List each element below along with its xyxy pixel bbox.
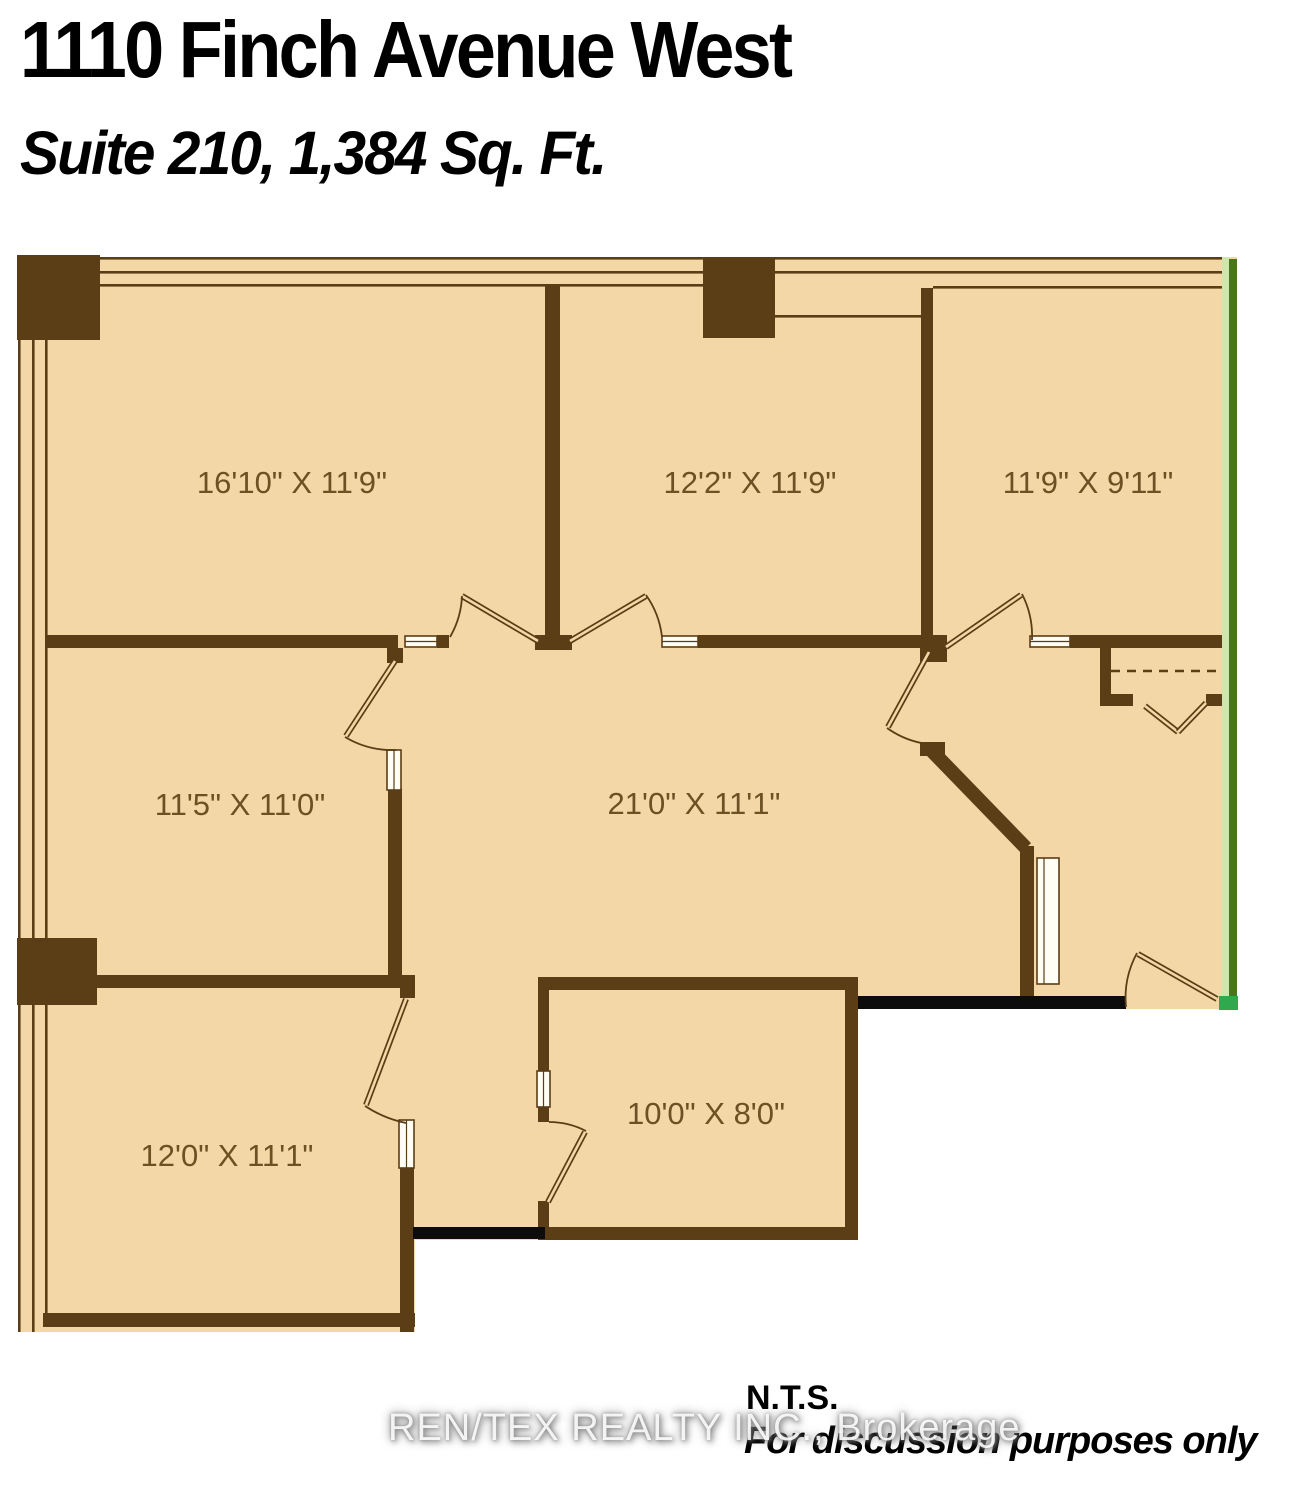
door-panel	[1037, 858, 1059, 984]
floorplan-drawing: 16'10" X 11'9" 12'2" X 11'9" 11'9" X 9'1…	[0, 0, 1300, 1498]
room-label-top-left: 16'10" X 11'9"	[197, 465, 387, 500]
brokerage-watermark: REN/TEX REALTY INC., Brokerage	[388, 1407, 1021, 1450]
column-mid-left	[17, 938, 97, 1005]
room-label-corridor: 21'0" X 11'1"	[608, 786, 781, 821]
room-label-mid-left: 11'5" X 11'0"	[155, 787, 326, 822]
room-label-top-right: 11'9" X 9'11"	[1003, 465, 1174, 500]
room-label-bottom-middle: 10'0" X 8'0"	[627, 1096, 785, 1131]
room-label-bottom-left: 12'0" X 11'1"	[141, 1138, 314, 1173]
column-top-left	[17, 255, 100, 340]
floorplan-page: 1110 Finch Avenue West Suite 210, 1,384 …	[0, 0, 1300, 1498]
room-label-top-middle: 12'2" X 11'9"	[664, 465, 837, 500]
column-top-center	[703, 257, 775, 338]
